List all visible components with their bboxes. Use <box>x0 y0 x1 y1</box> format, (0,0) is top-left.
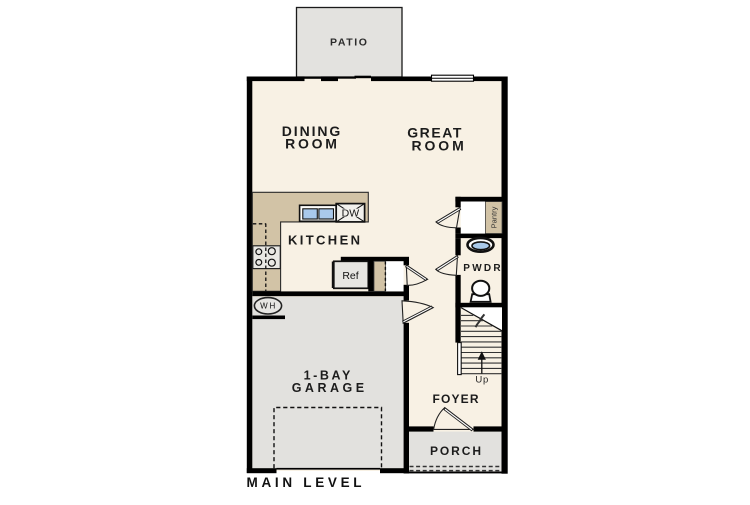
svg-text:Pantry: Pantry <box>490 206 499 228</box>
svg-text:KITCHEN: KITCHEN <box>288 233 362 248</box>
svg-text:WH: WH <box>260 302 277 311</box>
svg-text:PWDR: PWDR <box>463 263 503 274</box>
svg-text:MAIN LEVEL: MAIN LEVEL <box>247 475 366 490</box>
svg-text:ROOM: ROOM <box>285 136 340 152</box>
svg-text:PATIO: PATIO <box>330 37 369 49</box>
svg-text:FOYER: FOYER <box>433 392 480 406</box>
svg-text:ROOM: ROOM <box>411 138 466 154</box>
svg-text:PORCH: PORCH <box>430 444 483 458</box>
svg-text:DW: DW <box>342 208 360 220</box>
svg-text:Up: Up <box>475 374 489 385</box>
svg-text:GARAGE: GARAGE <box>292 381 368 395</box>
svg-text:Ref: Ref <box>342 270 358 282</box>
